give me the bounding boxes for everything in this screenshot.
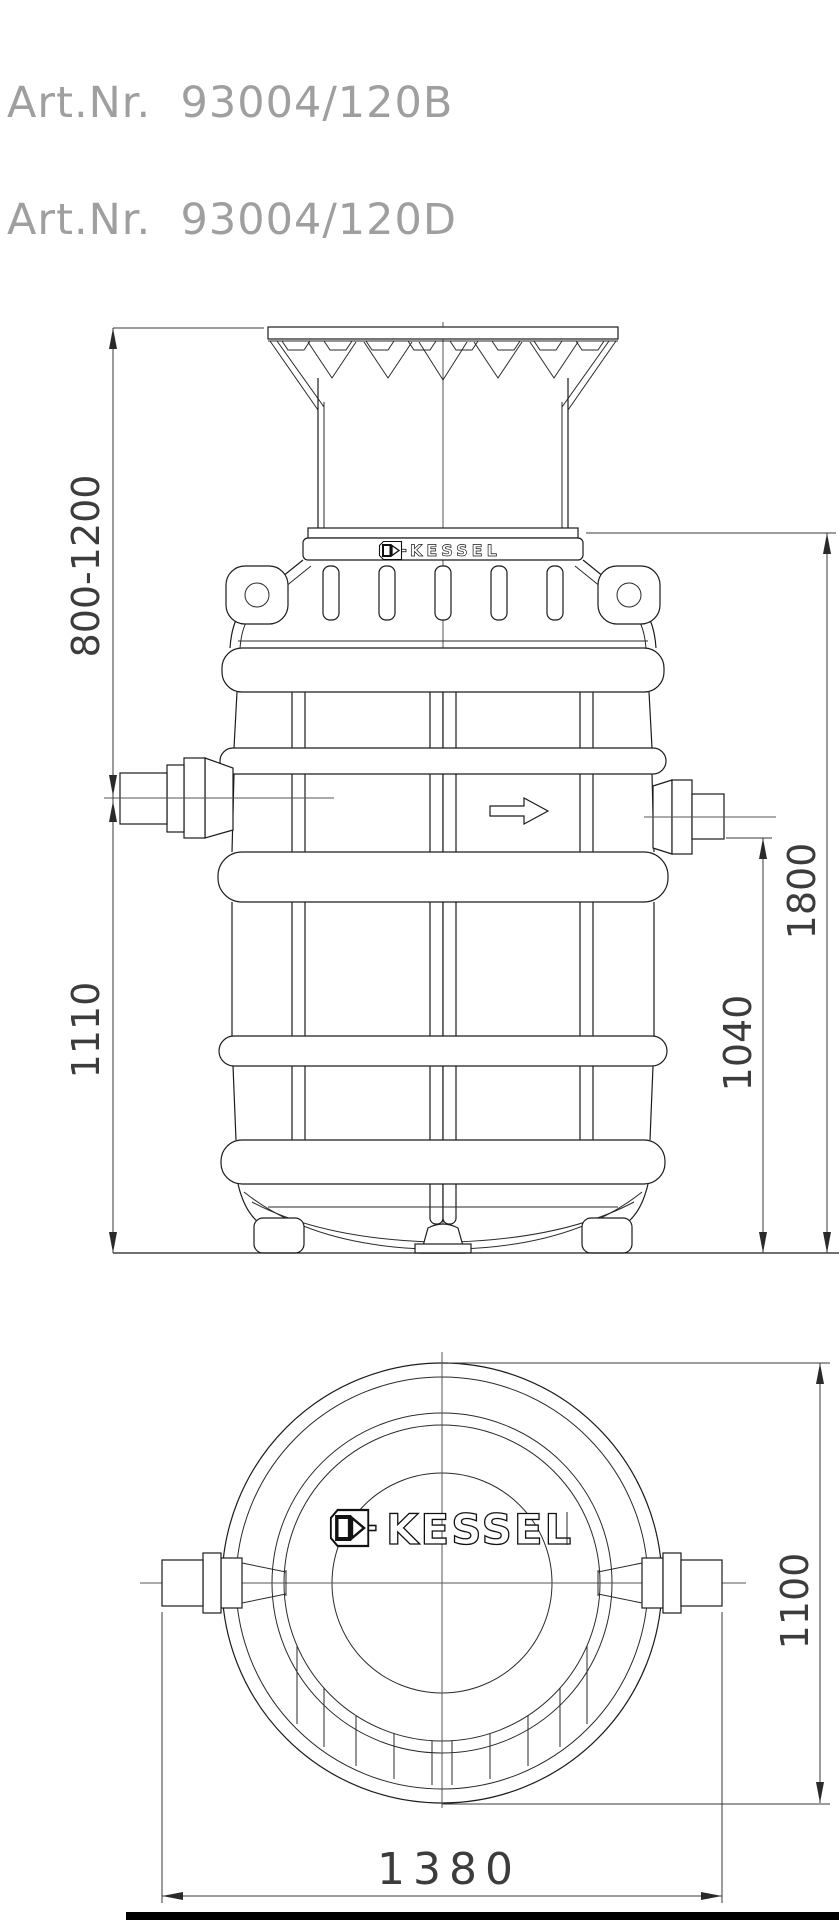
top-view: KESSEL 1100 1380 xyxy=(140,1352,830,1903)
lifting-lug-left xyxy=(226,566,288,624)
dim-label-tank-diameter: 1100 xyxy=(773,1553,817,1650)
side-view: KESSEL xyxy=(64,322,839,1253)
dim-label-inlet-height: 1110 xyxy=(64,982,108,1079)
dim-arrow xyxy=(759,1232,767,1253)
shaft-flange xyxy=(308,528,578,538)
dim-arrow xyxy=(109,328,117,349)
dim-arrow xyxy=(109,1232,117,1253)
dim-arrow xyxy=(109,775,117,796)
flow-arrow-icon xyxy=(490,798,548,824)
top-view-kessel-logo: KESSEL xyxy=(331,1505,573,1554)
tank-band-2 xyxy=(220,748,666,774)
drawing-frame-edge xyxy=(126,1912,839,1920)
outlet-pipe xyxy=(644,780,776,854)
kessel-collar: KESSEL xyxy=(303,538,583,560)
shoulder-ribs xyxy=(323,566,563,620)
foot-right xyxy=(582,1218,632,1253)
dim-arrow xyxy=(162,1892,183,1900)
kessel-logo-icon xyxy=(380,542,407,560)
dim-label-shaft-range: 800-1200 xyxy=(64,475,108,658)
tank-band-3 xyxy=(218,852,668,902)
dim-arrow xyxy=(109,801,117,822)
center-support-base xyxy=(415,1244,471,1253)
kessel-logo-text: KESSEL xyxy=(410,541,501,560)
dim-arrow xyxy=(816,1782,824,1803)
dim-arrow xyxy=(823,1232,831,1253)
foot-left xyxy=(254,1218,304,1253)
lifting-lug-right xyxy=(598,566,660,624)
dim-arrow xyxy=(759,838,767,859)
dim-label-outlet-height: 1040 xyxy=(716,995,760,1092)
kessel-logo-text: KESSEL xyxy=(386,1505,573,1554)
dim-label-total-height: 1800 xyxy=(780,843,824,940)
dim-arrow xyxy=(701,1892,722,1900)
technical-drawing-page: { "header": { "art_numbers": ["Art.Nr. 9… xyxy=(0,0,839,1920)
dim-label-overall-width: 1380 xyxy=(377,1844,521,1895)
dim-outlet-height: 1040 xyxy=(716,838,772,1253)
drawing-canvas: KESSEL xyxy=(0,0,839,1920)
tank-band-4 xyxy=(219,1036,667,1066)
dim-arrow xyxy=(823,533,831,554)
tank-band-5 xyxy=(221,1140,665,1184)
cover-slab xyxy=(268,327,618,339)
tank-band-1 xyxy=(222,648,664,692)
kessel-logo-icon xyxy=(331,1510,376,1546)
dim-arrow xyxy=(816,1363,824,1384)
